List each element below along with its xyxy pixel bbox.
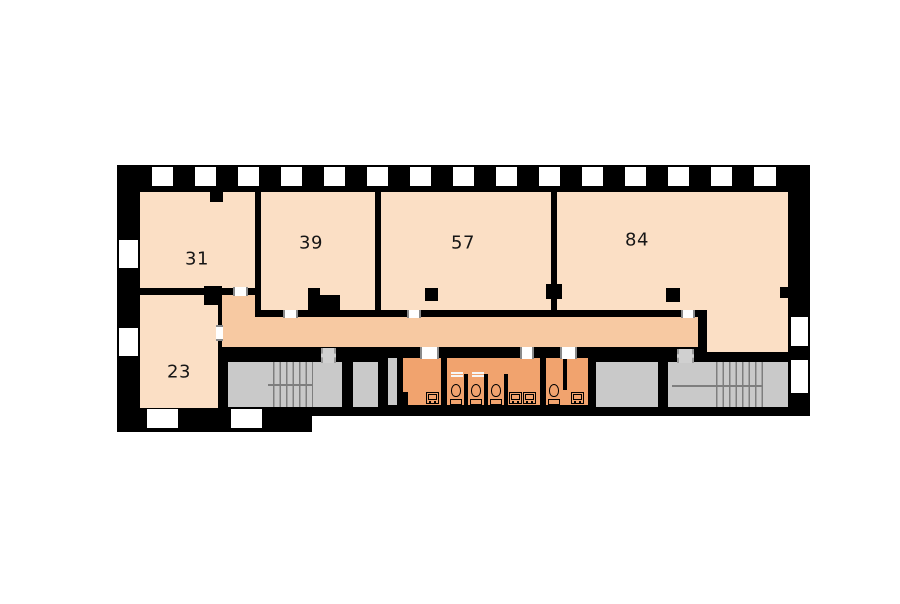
sink-icon: [571, 392, 584, 404]
corridor-floor: [222, 295, 255, 347]
sink-basin: [525, 394, 534, 400]
room-23-floor: [140, 295, 218, 408]
toilet-bowl: [491, 384, 501, 397]
toilet-tank: [548, 399, 560, 405]
toilet-icon: [490, 384, 503, 405]
pillar: [210, 192, 223, 202]
stall-partition: [484, 374, 488, 405]
window-icon: [453, 167, 474, 186]
room-84-floor-extension: [707, 310, 788, 352]
toilet-tank: [450, 399, 462, 405]
toilet-icon: [548, 384, 561, 405]
window-icon: [496, 167, 517, 186]
sink-tap: [517, 401, 519, 403]
pillar: [425, 288, 438, 301]
shaft-floor: [388, 358, 397, 405]
window-icon: [195, 167, 216, 186]
window-icon: [119, 328, 138, 356]
stairs-walkline: [268, 384, 313, 386]
door-room-39: [283, 310, 298, 318]
window-icon: [791, 317, 808, 346]
stall-partition: [464, 374, 468, 405]
window-icon: [539, 167, 560, 186]
toilet-bowl: [549, 384, 559, 397]
pillar: [780, 287, 789, 298]
wall-step: [403, 392, 408, 405]
window-icon: [152, 167, 173, 186]
sink-basin: [428, 394, 437, 400]
toilet-icon: [450, 384, 463, 405]
window-icon: [410, 167, 431, 186]
window-icon: [238, 167, 259, 186]
room-31-floor: [140, 192, 255, 288]
pillar: [666, 288, 680, 302]
sink-icon: [523, 392, 536, 404]
door-room-31: [233, 287, 248, 296]
sink-icon: [509, 392, 522, 404]
service-room-floor: [353, 362, 378, 407]
floor-plan: 31 39 57 84 23: [0, 0, 900, 604]
room-23-label: 23: [167, 362, 191, 383]
window-icon: [231, 409, 262, 428]
door-bathroom-right: [560, 347, 577, 359]
sink-tap: [526, 401, 528, 403]
window-icon: [582, 167, 603, 186]
corridor-floor: [255, 317, 698, 347]
door-room-23: [216, 325, 223, 341]
window-icon: [625, 167, 646, 186]
window-icon: [147, 409, 178, 428]
door-room-84: [681, 310, 695, 318]
sink-tap: [579, 401, 581, 403]
stall-partition: [504, 374, 508, 405]
door-stall: [472, 372, 484, 377]
window-icon: [754, 167, 776, 186]
window-icon: [281, 167, 302, 186]
door-room-57: [407, 310, 421, 318]
service-room-floor: [596, 362, 658, 407]
sink-tap: [574, 401, 576, 403]
room-39-label: 39: [299, 233, 323, 254]
sink-tap: [512, 401, 514, 403]
sink-basin: [573, 394, 582, 400]
door-stairwell-left: [321, 348, 336, 363]
stall-partition: [563, 358, 567, 390]
door-bathroom-middle: [520, 347, 534, 359]
room-31-label: 31: [185, 249, 209, 270]
chimney: [308, 295, 340, 312]
toilet-tank: [490, 399, 502, 405]
toilet-bowl: [471, 384, 481, 397]
sink-icon: [426, 392, 439, 404]
toilet-bowl: [451, 384, 461, 397]
window-icon: [791, 360, 808, 393]
room-84-label: 84: [625, 230, 649, 251]
pillar: [546, 284, 562, 299]
door-bathroom-left: [420, 347, 439, 359]
sink-tap: [531, 401, 533, 403]
toilet-icon: [470, 384, 483, 405]
window-icon: [119, 240, 138, 268]
pillar: [204, 286, 222, 305]
stairs-walkline: [672, 385, 763, 387]
window-icon: [668, 167, 689, 186]
room-57-label: 57: [451, 233, 475, 254]
window-icon: [324, 167, 345, 186]
sink-basin: [511, 394, 520, 400]
sink-tap: [434, 401, 436, 403]
door-stairwell-right: [677, 349, 694, 363]
window-icon: [711, 167, 732, 186]
window-icon: [367, 167, 388, 186]
toilet-tank: [470, 399, 482, 405]
sink-tap: [429, 401, 431, 403]
door-stall: [451, 372, 463, 377]
